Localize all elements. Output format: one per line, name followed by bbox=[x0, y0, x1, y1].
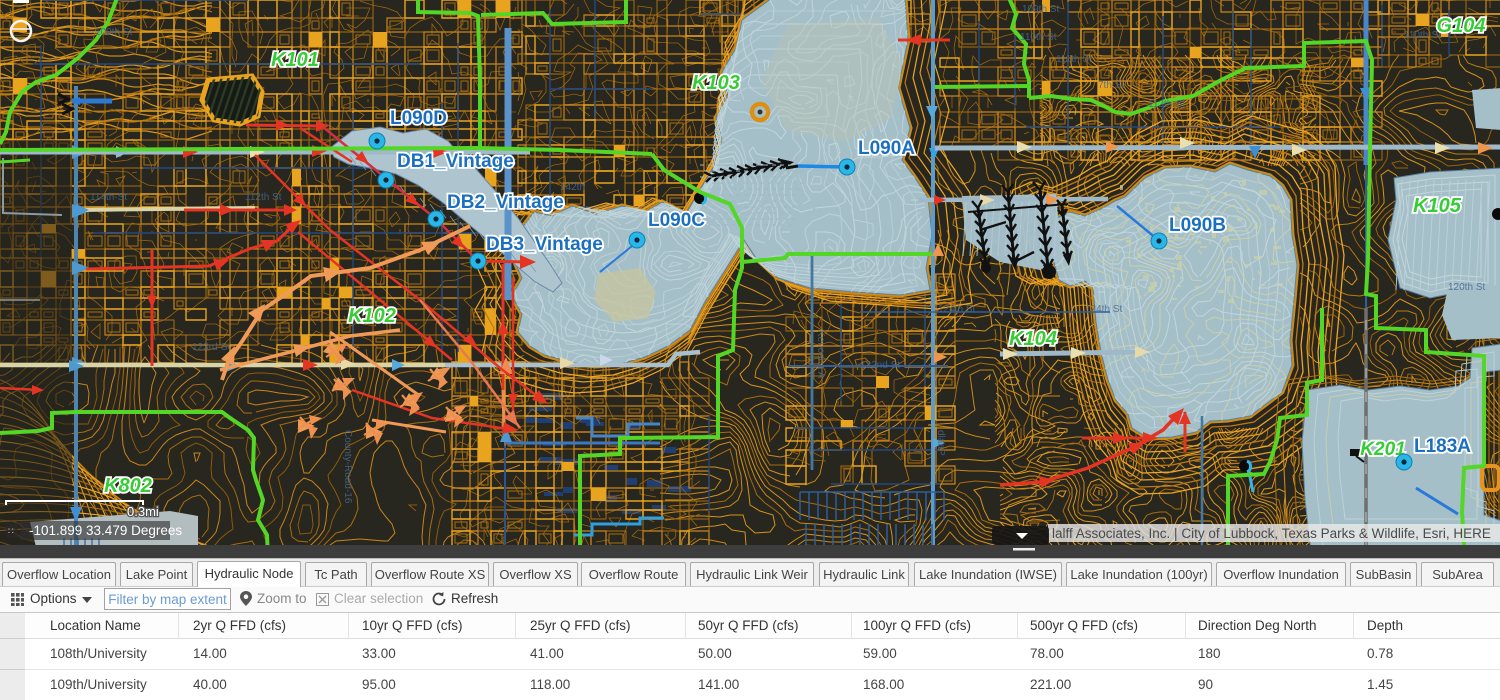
svg-text:112th-St: 112th-St bbox=[1148, 99, 1185, 110]
svg-text:K102: K102 bbox=[348, 305, 396, 327]
svg-text:lalff Associates, Inc. | City: lalff Associates, Inc. | City of Lubbock… bbox=[1052, 526, 1491, 541]
svg-text:DB2_Vintage: DB2_Vintage bbox=[447, 192, 564, 213]
svg-text:7th St: 7th St bbox=[1098, 80, 1124, 91]
svg-text:K105: K105 bbox=[1413, 195, 1462, 217]
svg-text:122nd St: 122nd St bbox=[860, 360, 900, 371]
svg-text:-101.899 33.479 Degrees: -101.899 33.479 Degrees bbox=[29, 523, 182, 538]
svg-text:L090A: L090A bbox=[858, 138, 915, 159]
svg-text:G104: G104 bbox=[1437, 15, 1486, 37]
svg-text:L090B: L090B bbox=[1169, 215, 1226, 236]
svg-text:dlaaP: dlaaP bbox=[935, 430, 946, 456]
svg-text:DB1_Vintage: DB1_Vintage bbox=[397, 151, 514, 172]
svg-text:L090C: L090C bbox=[648, 210, 705, 231]
svg-text:County-Road-16: County-Road-16 bbox=[342, 430, 353, 504]
svg-text:0.3mi: 0.3mi bbox=[127, 504, 159, 519]
svg-text:124th St: 124th St bbox=[1085, 304, 1122, 315]
svg-text:123rd-St: 123rd-St bbox=[192, 342, 231, 353]
svg-text:112th St: 112th St bbox=[245, 192, 282, 203]
svg-text:111th St: 111th St bbox=[1056, 54, 1092, 65]
svg-text:110th St: 110th St bbox=[1020, 32, 1057, 43]
svg-text:DB3_Vintage: DB3_Vintage bbox=[486, 234, 603, 255]
svg-text:K101: K101 bbox=[271, 49, 319, 71]
svg-text:∷: ∷ bbox=[8, 526, 14, 536]
svg-text:124th St: 124th St bbox=[938, 304, 975, 315]
svg-text:K103: K103 bbox=[692, 72, 740, 94]
svg-text:K802: K802 bbox=[104, 475, 152, 497]
svg-text:109th St: 109th St bbox=[1022, 4, 1059, 15]
svg-text:K104: K104 bbox=[1009, 328, 1057, 350]
svg-text:120th St: 120th St bbox=[1448, 282, 1485, 293]
svg-text:Kenosha A: Kenosha A bbox=[815, 330, 826, 379]
svg-text:L183A: L183A bbox=[1414, 436, 1471, 457]
svg-text:L090D: L090D bbox=[390, 108, 447, 129]
svg-text:114th-St: 114th-St bbox=[90, 192, 127, 203]
svg-text:109th St: 109th St bbox=[95, 27, 132, 38]
